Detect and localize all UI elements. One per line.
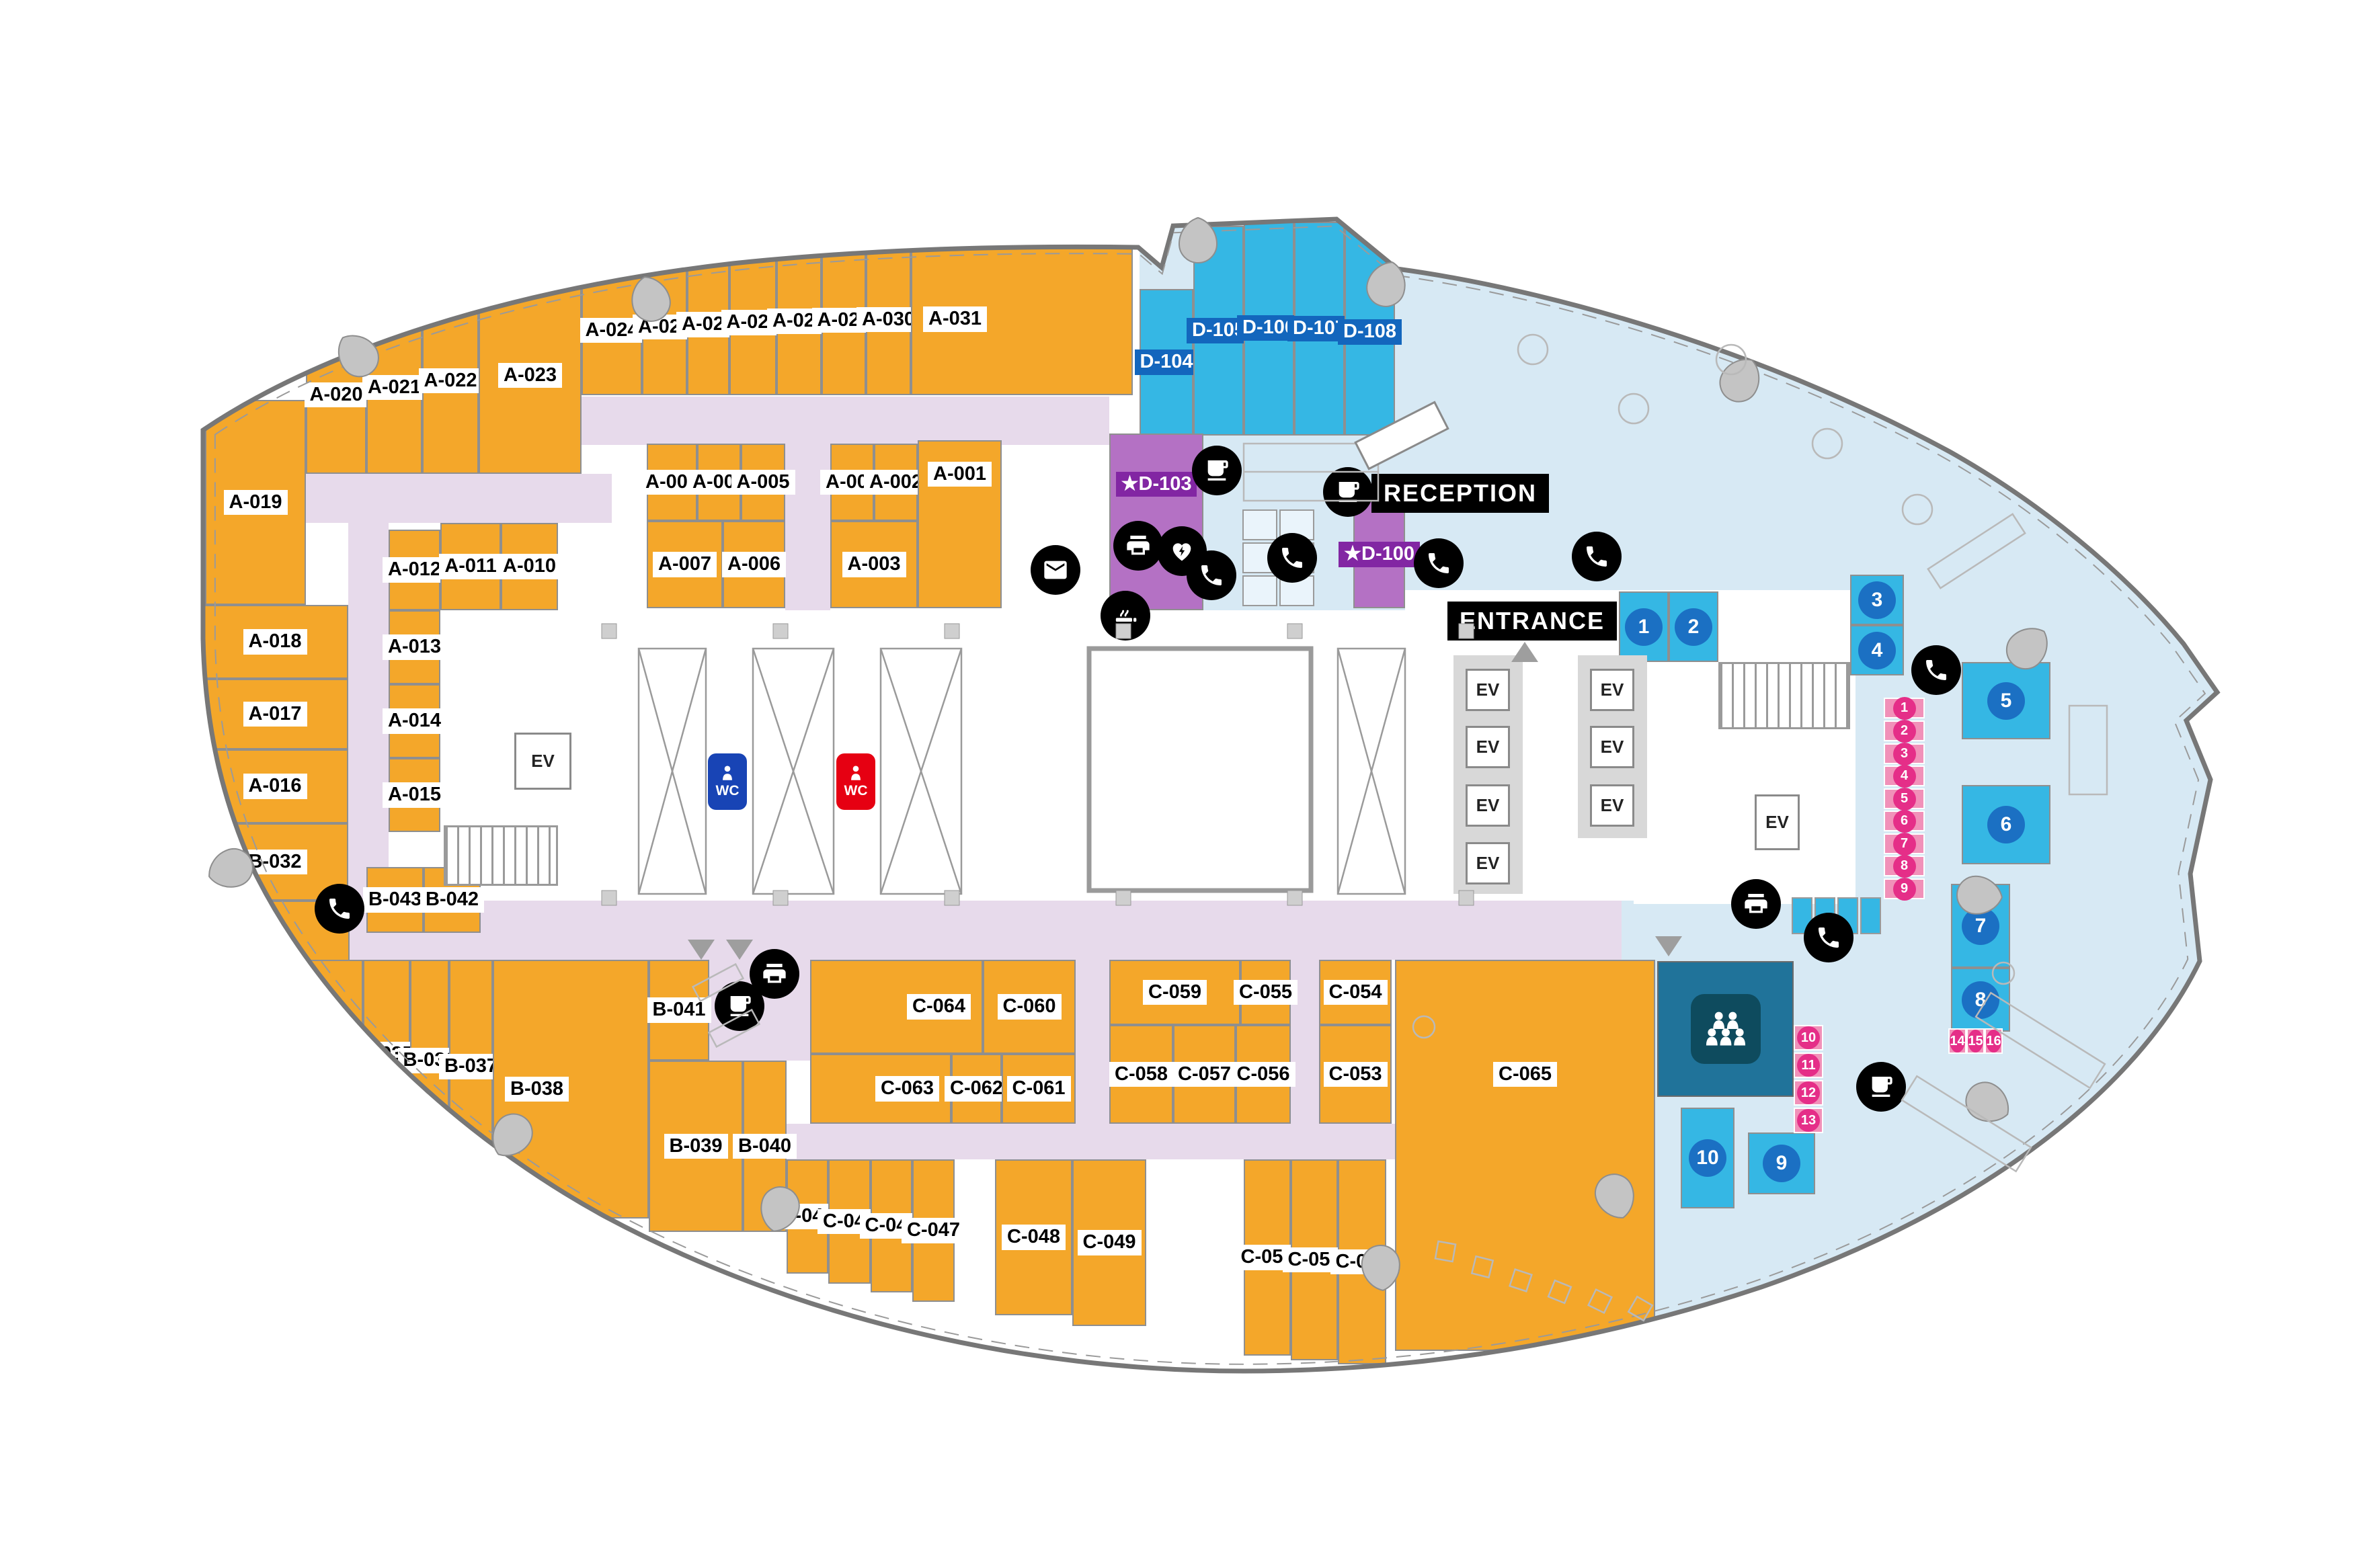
phone-booth-9: 9 <box>1884 878 1925 899</box>
floor-plan-interior: A-019 A-020 A-021 A-022 A-023 A-024 A-02… <box>0 0 2353 1568</box>
phone-booth-14: 14 <box>1948 1028 1966 1054</box>
phone-booth-11: 11 <box>1794 1053 1823 1078</box>
stairs <box>1718 662 1850 729</box>
room-c-052: C-052 <box>1338 1159 1386 1364</box>
phone-icon <box>1804 913 1853 962</box>
coffee-icon <box>1192 446 1242 495</box>
booth-number: 6 <box>1893 810 1916 833</box>
entrance-label: ENTRANCE <box>1447 602 1617 641</box>
room-c-060: C-060 <box>983 960 1076 1054</box>
room-b-043: B-043 <box>366 867 424 933</box>
room-a-012: A-012 <box>389 530 440 610</box>
meeting-people-icon <box>1691 994 1761 1064</box>
phone-booth-cell <box>1242 509 1277 540</box>
room-label: C-048 <box>1002 1225 1066 1249</box>
meeting-room-4: 4 <box>1850 625 1904 675</box>
room-a-019: A-019 <box>205 400 306 605</box>
booth-number: 5 <box>1893 788 1916 811</box>
meeting-room-number: 9 <box>1763 1145 1800 1182</box>
wc-male-icon: WC <box>708 753 747 810</box>
room-label: B-039 <box>664 1134 728 1159</box>
elevator: EV <box>1590 726 1634 768</box>
meeting-room-3: 3 <box>1850 575 1904 625</box>
booth-number: 10 <box>1797 1026 1820 1049</box>
phone-booth-2: 2 <box>1884 720 1925 741</box>
room-a-016: A-016 <box>202 749 348 823</box>
room-a-030: A-030 <box>866 244 911 395</box>
elevator-label: EV <box>531 751 555 772</box>
direction-marker <box>688 940 715 960</box>
room-a-015: A-015 <box>389 758 440 832</box>
phone-icon <box>1267 533 1317 583</box>
room-c-063: C-063 <box>810 1054 951 1124</box>
reception-label: RECEPTION <box>1371 474 1549 513</box>
wc-label: WC <box>716 783 740 799</box>
room-a-006: A-006 <box>723 521 785 608</box>
room-label: C-056 <box>1232 1062 1295 1087</box>
room-b-034: B-034 <box>296 960 363 1136</box>
room-b-038: B-038 <box>493 960 649 1219</box>
phone-booth-13: 13 <box>1794 1108 1823 1133</box>
room-label: A-003 <box>842 552 906 577</box>
printer-icon <box>1731 879 1781 929</box>
elevator-label: EV <box>1601 737 1624 757</box>
room-label: C-059 <box>1143 980 1207 1005</box>
room-a-007: A-007 <box>647 521 723 608</box>
wc-female-icon: WC <box>836 753 875 810</box>
booth-number: 4 <box>1893 765 1916 788</box>
phone-booth-7: 7 <box>1884 833 1925 854</box>
meeting-room-number: 7 <box>1962 907 1999 945</box>
room-label: A-022 <box>419 368 483 393</box>
room-a-010: A-010 <box>501 523 558 610</box>
room-c-048: C-048 <box>995 1159 1072 1315</box>
corridor-bottom <box>348 897 1622 960</box>
room-label: C-064 <box>907 994 971 1019</box>
room-label: B-034 <box>298 1035 362 1060</box>
room-label: A-017 <box>243 702 307 727</box>
direction-marker <box>726 940 753 960</box>
phone-icon <box>1187 550 1236 600</box>
meeting-room-2: 2 <box>1669 591 1718 662</box>
coffee-icon <box>1323 467 1373 517</box>
meeting-room-number: 5 <box>1987 682 2025 720</box>
room-label: B-041 <box>647 997 711 1022</box>
elevator-label: EV <box>1601 679 1624 700</box>
room-a-031: A-031 <box>911 243 1133 395</box>
phone-icon <box>1414 538 1464 588</box>
room-label: B-033 <box>244 957 308 982</box>
booth-number: 2 <box>1893 720 1916 743</box>
room-label: C-047 <box>902 1218 965 1243</box>
room-label: A-019 <box>224 490 288 515</box>
booth-number: 13 <box>1797 1109 1820 1132</box>
room-c-061: C-061 <box>1002 1054 1076 1124</box>
room-label: C-054 <box>1324 980 1388 1005</box>
room-label: A-016 <box>243 774 307 798</box>
room-a-022: A-022 <box>422 288 479 474</box>
room-c-053: C-053 <box>1319 1025 1392 1124</box>
room-c-064: C-064 <box>810 960 983 1054</box>
stairs <box>444 825 558 886</box>
room-d-105: D-105 <box>1193 226 1244 436</box>
corridor-vertical-c1 <box>1076 960 1109 1124</box>
printer-icon <box>750 949 799 999</box>
room-c-055: C-055 <box>1240 960 1291 1025</box>
elevator: EV <box>1590 784 1634 827</box>
printer-icon <box>1113 521 1163 571</box>
mail-icon <box>1031 545 1080 595</box>
room-label: C-053 <box>1324 1062 1388 1087</box>
phone-booth-4: 4 <box>1884 766 1925 786</box>
room-label: D-104 <box>1135 349 1199 374</box>
booth-number: 14 <box>1950 1030 1965 1053</box>
room-label: A-018 <box>243 629 307 654</box>
elevator: EV <box>1755 794 1800 850</box>
room-label: ★D-100 <box>1339 542 1420 567</box>
room-d-106: D-106 <box>1244 220 1294 436</box>
room-c-062: C-062 <box>951 1054 1002 1124</box>
booth-number: 9 <box>1893 878 1916 901</box>
phone-booth-6: 6 <box>1884 811 1925 831</box>
corridor-top-2 <box>582 397 1109 445</box>
room-label: B-038 <box>505 1077 569 1102</box>
meeting-room-7: 7 <box>1951 884 2010 968</box>
meeting-room-1: 1 <box>1619 591 1669 662</box>
room-label: B-042 <box>420 887 484 912</box>
meeting-room-10: 10 <box>1681 1108 1734 1208</box>
room-label: C-049 <box>1078 1230 1142 1255</box>
room-label: C-052 <box>1330 1249 1394 1274</box>
booth-number: 12 <box>1797 1081 1820 1104</box>
room-d-107: D-107 <box>1294 222 1345 436</box>
room-a-023: A-023 <box>479 277 582 474</box>
booth-number: 16 <box>1986 1030 2001 1053</box>
elevator-label: EV <box>1476 853 1500 874</box>
room-label: B-040 <box>733 1134 797 1159</box>
booth-number: 1 <box>1893 697 1916 720</box>
elevator: EV <box>1466 842 1510 884</box>
room-a-001: A-001 <box>918 440 1002 608</box>
room-label: B-032 <box>243 850 307 874</box>
core-pocket-2 <box>558 523 647 610</box>
booth-number: 11 <box>1797 1054 1820 1077</box>
elevator: EV <box>514 733 571 790</box>
phone-booth-8: 8 <box>1884 856 1925 876</box>
room-label: A-006 <box>722 552 786 577</box>
direction-marker <box>1655 936 1682 956</box>
room-c-054: C-054 <box>1319 960 1392 1025</box>
smoking-icon <box>1101 591 1150 641</box>
room-label: C-061 <box>1007 1076 1071 1101</box>
phone-icon <box>315 884 364 934</box>
phone-booth-12: 12 <box>1794 1080 1823 1106</box>
room-a-013: A-013 <box>389 610 440 684</box>
room-label: C-062 <box>945 1076 1008 1101</box>
room-label: A-010 <box>497 554 561 579</box>
room-label: A-001 <box>928 462 992 487</box>
phone-booth-3: 3 <box>1884 743 1925 764</box>
room-a-002: A-002 <box>874 444 918 521</box>
focus-booth <box>1860 897 1881 934</box>
room-label: C-063 <box>875 1076 939 1101</box>
room-label: C-060 <box>998 994 1062 1019</box>
phone-booth-cell <box>1242 575 1277 606</box>
room-d-100: ★D-100 <box>1353 501 1405 608</box>
room-c-056: C-056 <box>1236 1025 1291 1124</box>
elevator-label: EV <box>1765 812 1789 833</box>
room-label: C-065 <box>1493 1062 1557 1087</box>
room-label: A-023 <box>498 363 562 388</box>
meeting-room-number: 10 <box>1689 1139 1726 1177</box>
meeting-room-5: 5 <box>1962 662 2050 739</box>
coffee-icon <box>1856 1062 1906 1112</box>
room-a-017: A-017 <box>202 679 348 749</box>
booth-number: 15 <box>1968 1030 1983 1053</box>
room-label: A-007 <box>653 552 717 577</box>
elevator: EV <box>1466 784 1510 827</box>
phone-booth-1: 1 <box>1884 698 1925 718</box>
room-label: C-055 <box>1234 980 1298 1005</box>
room-b-037: B-037 <box>449 960 493 1173</box>
room-label: A-014 <box>383 708 446 733</box>
room-b-041: B-041 <box>649 960 709 1061</box>
elevator-label: EV <box>1601 795 1624 816</box>
corridor-bottom-2 <box>787 1124 1395 1159</box>
phone-booth-5: 5 <box>1884 788 1925 809</box>
phone-booth-16: 16 <box>1985 1028 2003 1054</box>
room-d-108: D-108 <box>1345 229 1395 436</box>
meeting-room-number: 1 <box>1625 608 1663 646</box>
elevator: EV <box>1466 726 1510 768</box>
phone-icon <box>1572 532 1622 581</box>
room-c-047: C-047 <box>912 1159 955 1302</box>
room-b-039: B-039 <box>649 1061 743 1232</box>
meeting-room-8: 8 <box>1951 968 2010 1032</box>
room-label: A-012 <box>383 557 446 582</box>
booth-number: 3 <box>1893 743 1916 766</box>
room-a-005: A-005 <box>741 444 785 521</box>
phone-booth-10: 10 <box>1794 1025 1823 1050</box>
room-label: A-020 <box>305 382 368 407</box>
room-label: A-015 <box>383 782 446 807</box>
seminar-room <box>1657 961 1794 1097</box>
room-label: C-058 <box>1109 1062 1173 1087</box>
room-label: A-013 <box>383 634 446 659</box>
elevator: EV <box>1466 669 1510 711</box>
wc-label: WC <box>844 783 868 799</box>
floor-plan: A-019 A-020 A-021 A-022 A-023 A-024 A-02… <box>0 0 2353 1568</box>
elevator: EV <box>1590 669 1634 711</box>
room-a-014: A-014 <box>389 684 440 758</box>
booth-number: 8 <box>1893 855 1916 878</box>
room-c-049: C-049 <box>1072 1159 1146 1326</box>
room-d-104: D-104 <box>1140 289 1193 436</box>
room-label: D-108 <box>1338 319 1402 344</box>
room-a-003: A-003 <box>830 521 918 608</box>
room-label: ★D-103 <box>1116 472 1197 497</box>
corridor-vertical-mid <box>785 397 830 610</box>
room-label: A-031 <box>923 306 987 331</box>
room-label: A-005 <box>731 470 795 495</box>
room-c-065: C-065 <box>1395 960 1655 1351</box>
direction-marker <box>1511 642 1538 662</box>
phone-booth-15: 15 <box>1966 1028 1985 1054</box>
room-a-020: A-020 <box>306 316 366 474</box>
meeting-room-6: 6 <box>1962 785 2050 864</box>
room-c-057: C-057 <box>1173 1025 1236 1124</box>
booth-number: 7 <box>1893 833 1916 856</box>
room-a-018: A-018 <box>202 605 348 679</box>
elevator-label: EV <box>1476 679 1500 700</box>
phone-icon <box>1911 645 1961 695</box>
meeting-room-number: 4 <box>1858 632 1896 669</box>
room-label: B-043 <box>363 887 427 912</box>
room-label: A-011 <box>439 554 502 579</box>
meeting-room-number: 6 <box>1987 806 2025 843</box>
room-label: C-057 <box>1172 1062 1236 1087</box>
meeting-room-number: 8 <box>1962 981 1999 1019</box>
elevator-label: EV <box>1476 795 1500 816</box>
room-label: A-021 <box>362 375 426 400</box>
corridor-top-1 <box>306 474 612 523</box>
room-a-021: A-021 <box>366 301 422 474</box>
meeting-room-number: 2 <box>1675 608 1712 646</box>
elevator-label: EV <box>1476 737 1500 757</box>
room-c-058: C-058 <box>1109 1025 1173 1124</box>
room-a-011: A-011 <box>440 523 501 610</box>
meeting-room-number: 3 <box>1858 581 1896 619</box>
room-c-059: C-059 <box>1109 960 1240 1025</box>
meeting-room-9: 9 <box>1748 1132 1815 1194</box>
